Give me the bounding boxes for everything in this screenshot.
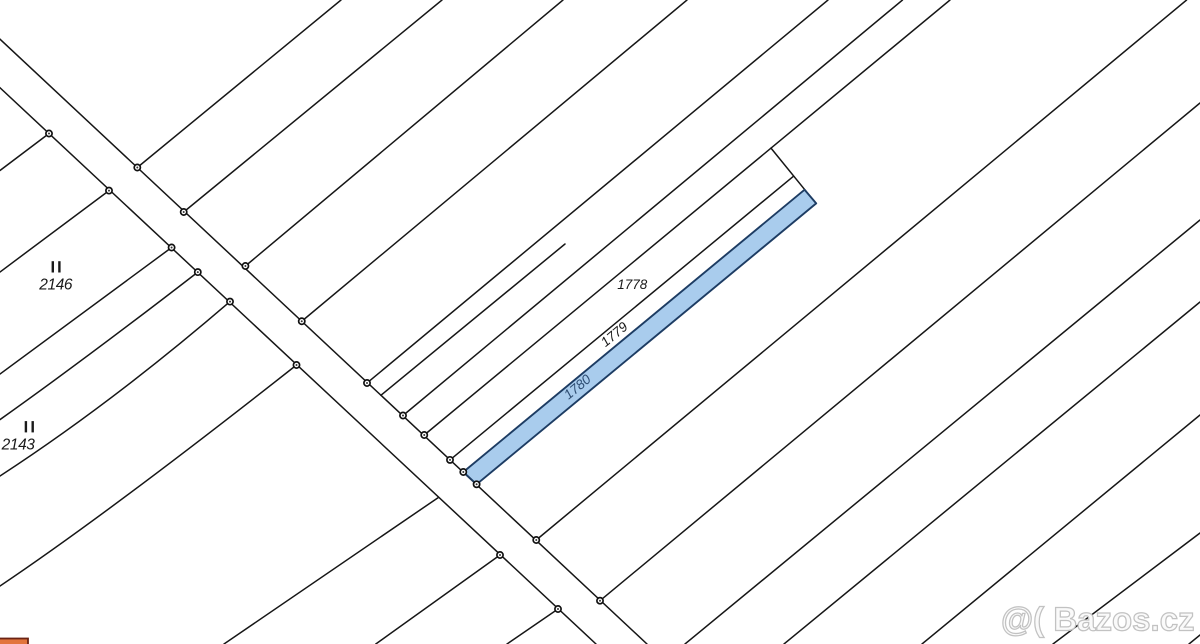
svg-text:@( Bazos.cz: @( Bazos.cz: [1001, 601, 1195, 638]
svg-text:2143: 2143: [1, 436, 36, 453]
svg-text:2146: 2146: [38, 277, 73, 294]
svg-text:1778: 1778: [617, 277, 648, 292]
